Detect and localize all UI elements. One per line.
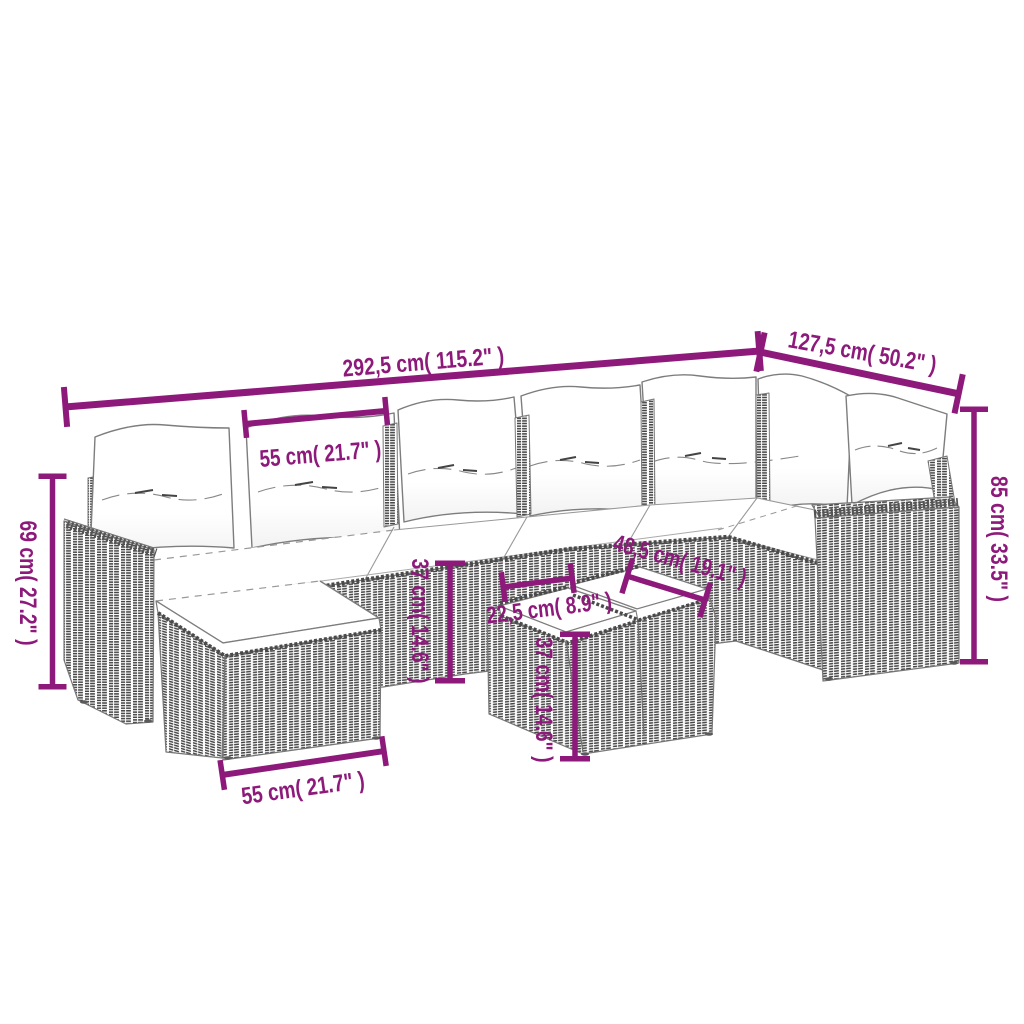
svg-text:85 cm( 33.5" ): 85 cm( 33.5" ): [985, 476, 1012, 602]
svg-text:69 cm( 27.2" ): 69 cm( 27.2" ): [14, 521, 41, 646]
svg-text:37 cm( 14.6" ): 37 cm( 14.6" ): [530, 638, 557, 763]
svg-text:37 cm( 14.6" ): 37 cm( 14.6" ): [406, 559, 433, 684]
